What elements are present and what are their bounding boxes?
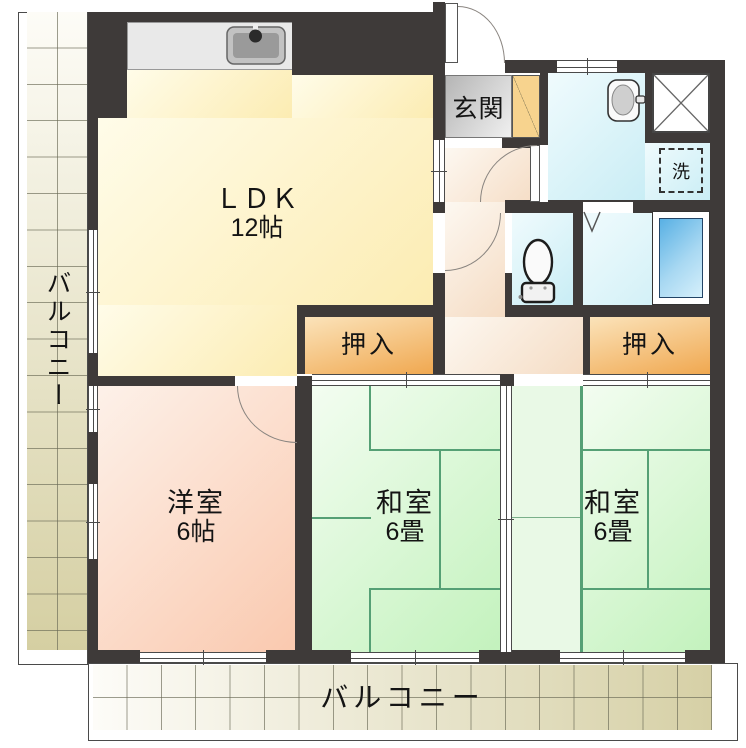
ldk-label: ＬＤＫ 12帖 <box>177 182 337 244</box>
toilet-icon <box>518 238 558 308</box>
opening-ldk-hall <box>433 140 445 202</box>
kitchen-sink-icon <box>226 24 288 68</box>
closet-right-label: 押入 <box>590 328 710 362</box>
window-ldk-left <box>88 230 98 353</box>
pipe-shaft-x-icon <box>652 73 710 133</box>
balcony-bottom-label: バルコニー <box>93 678 712 718</box>
laundry-space: 洗 <box>659 148 703 193</box>
shoe-cabinet <box>512 75 540 138</box>
outer-wall-left <box>88 118 98 230</box>
window-western-left-lower <box>88 484 98 559</box>
window-western-bottom <box>140 652 266 663</box>
laundry-label: 洗 <box>672 158 690 184</box>
japanese-room-right-label: 和室 6畳 <box>533 486 693 548</box>
door-ldk-opening <box>433 213 445 273</box>
bathtub-icon <box>652 211 710 305</box>
window-japanese-center-bottom <box>351 652 479 663</box>
window-japanese-right-bottom <box>560 652 685 663</box>
folding-door-mark <box>582 210 604 234</box>
japanese-room-center-label: 和室 6畳 <box>325 486 485 548</box>
door-toilet-opening <box>505 213 512 273</box>
ldk-room <box>127 70 292 118</box>
entrance-door-arc <box>458 6 505 63</box>
fusuma-track-partition <box>500 386 512 652</box>
window-washroom-top <box>557 60 617 73</box>
fusuma-track-center-room <box>312 374 500 386</box>
floor-plan: バルコニー バルコニー <box>0 0 746 748</box>
genkan-label: 玄関 <box>445 94 512 124</box>
balcony-left-label: バルコニー <box>30 245 84 435</box>
outer-wall-right <box>710 60 725 663</box>
door-western-opening <box>235 376 297 386</box>
door-washroom-opening <box>540 145 548 202</box>
entrance-door-leaf <box>445 3 458 63</box>
washbasin-icon <box>606 78 648 124</box>
window-western-left-upper <box>88 386 98 432</box>
fusuma-track-right-room <box>583 374 710 386</box>
closet-left-label: 押入 <box>305 328 433 362</box>
opening-genkan-hall <box>445 138 502 148</box>
western-room-label: 洋室 6帖 <box>116 486 276 548</box>
